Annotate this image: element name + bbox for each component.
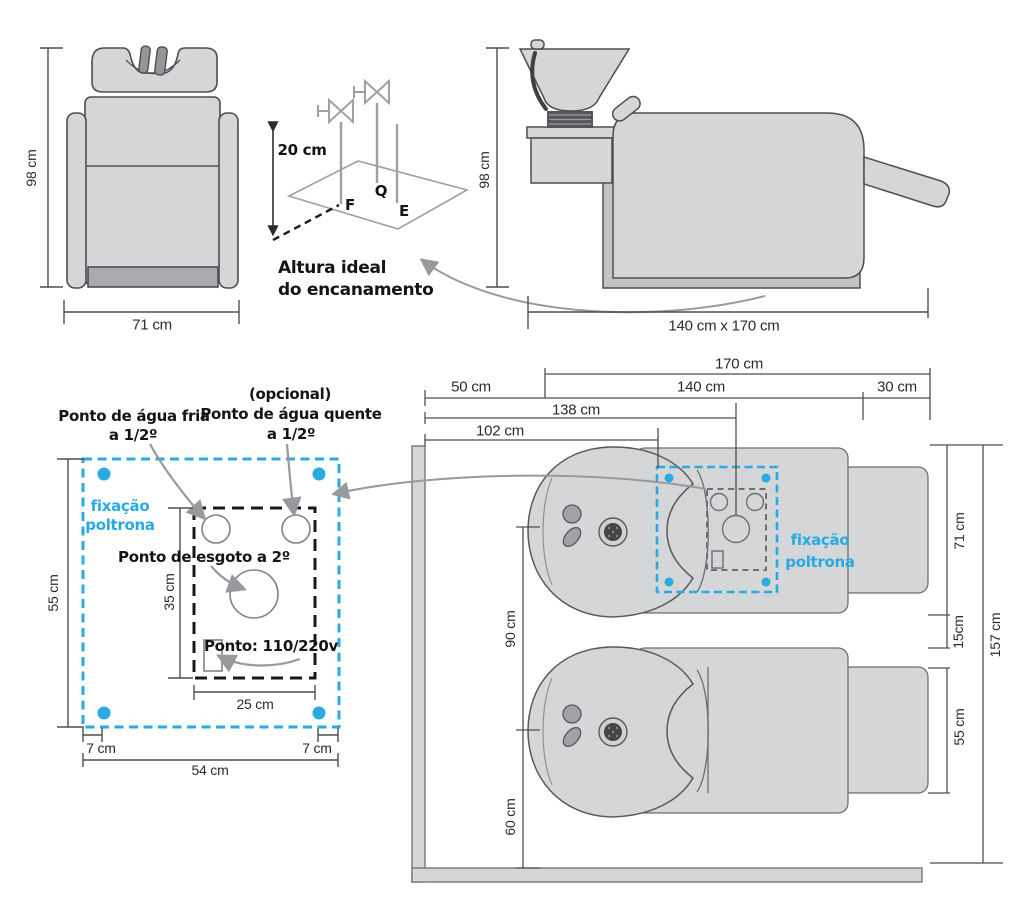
plan-fix-offset-label: 102 cm bbox=[476, 423, 524, 440]
plan-total-length-label: 170 cm bbox=[715, 356, 763, 373]
dashed-floor-line bbox=[273, 205, 339, 240]
front-armrest-right bbox=[219, 113, 238, 288]
plan-back-gap-label: 30 cm bbox=[877, 379, 917, 396]
power-label: Ponto: 110/220v bbox=[204, 637, 338, 655]
cold-valve-icon bbox=[318, 100, 353, 122]
plan-gap-label: 15cm bbox=[950, 615, 966, 648]
wall-left bbox=[412, 446, 425, 882]
plan-basin-width-label: 55 cm bbox=[951, 708, 967, 745]
plan-drain-offset-label: 138 cm bbox=[552, 402, 600, 419]
cold-water-point bbox=[202, 515, 230, 543]
side-console bbox=[531, 138, 612, 183]
side-view-unit bbox=[520, 40, 949, 288]
hot-valve-icon bbox=[354, 81, 389, 103]
plan-fixing-label-line1: fixação bbox=[791, 531, 850, 549]
side-height-label: 98 cm bbox=[476, 151, 492, 188]
drain-point bbox=[230, 570, 278, 618]
plan-fixing-label-line2: poltrona bbox=[785, 553, 854, 571]
detail-inner-width-label: 25 cm bbox=[236, 696, 273, 712]
front-width-label: 71 cm bbox=[132, 317, 172, 334]
floor-plan bbox=[412, 368, 1003, 882]
hot-water-label-line2: Ponto de água quente bbox=[200, 405, 381, 423]
hot-water-label-line1: (opcional) bbox=[249, 385, 331, 403]
drain-label: Ponto de esgoto a 2º bbox=[118, 548, 290, 566]
drain-letter: E bbox=[399, 202, 409, 220]
side-footprint-label: 140 cm x 170 cm bbox=[668, 318, 779, 335]
pipe-caption-line2: do encanamento bbox=[278, 280, 433, 300]
detail-height-label: 55 cm bbox=[45, 574, 61, 611]
basin-neck bbox=[547, 111, 593, 128]
side-chair-body bbox=[613, 113, 864, 278]
side-basin bbox=[520, 49, 629, 111]
wall-bottom bbox=[412, 868, 922, 882]
faucet-top bbox=[563, 505, 581, 523]
basin-faucet bbox=[531, 40, 544, 49]
plan-total-width-label: 157 cm bbox=[987, 613, 1003, 658]
hot-water-label-line3: a 1/2º bbox=[267, 425, 315, 443]
front-grips bbox=[138, 46, 167, 76]
plan-wall-dist-label: 60 cm bbox=[502, 798, 518, 835]
fixing-label-line2: poltrona bbox=[85, 516, 154, 534]
installation-diagram: 98 cm 71 cm 20 cm F Q E Altura ideal do … bbox=[0, 0, 1032, 905]
front-backrest bbox=[85, 97, 220, 285]
side-legrest bbox=[864, 157, 949, 207]
hot-tap-letter: Q bbox=[375, 182, 387, 200]
pipe-caption-line1: Altura ideal bbox=[278, 258, 386, 278]
plan-unit-length-label: 140 cm bbox=[677, 379, 725, 396]
detail-inner-height-label: 35 cm bbox=[161, 573, 177, 610]
detail-offset-right-label: 7 cm bbox=[302, 740, 332, 756]
hot-water-point bbox=[282, 515, 310, 543]
fixing-detail-panel bbox=[57, 444, 339, 767]
front-height-label: 98 cm bbox=[23, 149, 39, 186]
plan-wall-gap-label: 50 cm bbox=[451, 379, 491, 396]
front-view-chair bbox=[67, 46, 238, 288]
wash-unit-bottom bbox=[528, 647, 928, 817]
front-base-strip bbox=[88, 267, 218, 287]
pipe-height-label: 20 cm bbox=[277, 141, 326, 159]
cold-water-label-line1: Ponto de água fria bbox=[58, 407, 209, 425]
fixing-label-line1: fixação bbox=[91, 497, 150, 515]
cold-tap-letter: F bbox=[345, 196, 355, 214]
plan-spacing-label: 90 cm bbox=[502, 610, 518, 647]
diagram-linework bbox=[0, 0, 1032, 905]
cold-water-label-line2: a 1/2º bbox=[109, 426, 157, 444]
front-armrest-left bbox=[67, 113, 86, 288]
plan-unit-width-label: 71 cm bbox=[951, 512, 967, 549]
detail-offset-left-label: 7 cm bbox=[86, 740, 116, 756]
detail-width-label: 54 cm bbox=[191, 762, 228, 778]
